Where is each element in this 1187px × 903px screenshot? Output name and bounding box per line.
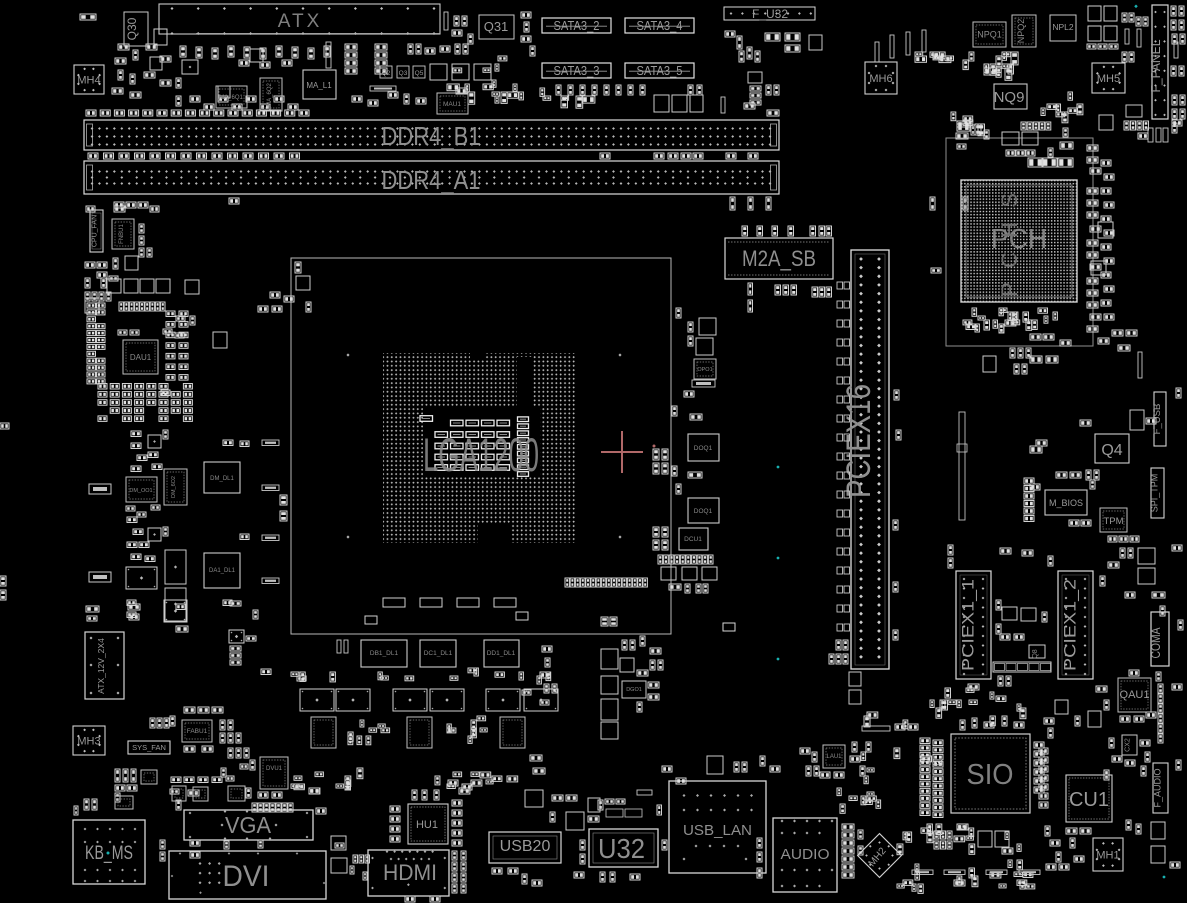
- svg-text:DAU1: DAU1: [130, 353, 152, 362]
- svg-text:NPL2: NPL2: [1052, 22, 1074, 32]
- svg-text:DM_6O2: DM_6O2: [171, 476, 177, 498]
- svg-text:SPI_TPM: SPI_TPM: [1150, 474, 1160, 513]
- svg-text:Q3: Q3: [399, 70, 408, 77]
- svg-text:MAU1: MAU1: [443, 101, 461, 108]
- svg-text:NQ9: NQ9: [994, 89, 1025, 106]
- svg-text:Q8: Q8: [1032, 649, 1039, 658]
- svg-text:USB_LAN: USB_LAN: [683, 822, 752, 839]
- svg-text:ATX_12V_2X4: ATX_12V_2X4: [96, 638, 106, 694]
- svg-text:SYS_FAN: SYS_FAN: [132, 743, 166, 752]
- svg-text:DM_DL1: DM_DL1: [210, 476, 234, 482]
- svg-text:PCIEX1_1: PCIEX1_1: [959, 579, 978, 671]
- svg-text:ATX: ATX: [278, 11, 323, 32]
- svg-text:DGO1: DGO1: [626, 687, 642, 693]
- svg-text:Q4: Q4: [1101, 442, 1122, 459]
- svg-text:MH1: MH1: [1096, 849, 1119, 861]
- svg-text:NPQ1: NPQ1: [977, 30, 1002, 40]
- svg-text:OPO1: OPO1: [697, 367, 712, 373]
- svg-text:FABU1: FABU1: [187, 728, 208, 735]
- svg-text:DC1_DL1: DC1_DL1: [424, 650, 453, 657]
- svg-text:DOQ1: DOQ1: [694, 445, 713, 452]
- svg-text:SATA3_5: SATA3_5: [637, 64, 683, 78]
- svg-text:DVI: DVI: [223, 860, 270, 893]
- svg-text:SATA3_2: SATA3_2: [554, 19, 600, 33]
- svg-text:DD1_DL1: DD1_DL1: [487, 650, 516, 657]
- svg-text:MH6: MH6: [869, 73, 892, 85]
- svg-text:U32: U32: [598, 833, 645, 864]
- svg-text:DCU1: DCU1: [684, 536, 702, 543]
- svg-text:QAU1: QAU1: [1120, 689, 1150, 701]
- svg-text:M_BIOS: M_BIOS: [1049, 498, 1083, 508]
- svg-text:DDR4_A1: DDR4_A1: [382, 165, 481, 195]
- svg-text:DDR4_B1: DDR4_B1: [382, 121, 481, 151]
- svg-text:COMA: COMA: [1148, 627, 1163, 658]
- svg-text:FNBU1: FNBU1: [119, 224, 125, 244]
- svg-text:SATA3_3: SATA3_3: [554, 64, 600, 78]
- svg-text:LGA1200: LGA1200: [423, 428, 539, 481]
- svg-text:DM_OO1: DM_OO1: [129, 488, 152, 494]
- svg-text:DOQ1: DOQ1: [694, 508, 713, 515]
- svg-text:MA_6Q1: MA_6Q1: [219, 95, 243, 101]
- svg-text:F_USB: F_USB: [1152, 404, 1163, 435]
- svg-text:SATA3_4: SATA3_4: [637, 19, 683, 33]
- svg-text:LAU1: LAU1: [826, 754, 842, 760]
- svg-text:F_U32: F_U32: [752, 7, 788, 21]
- svg-text:AUDIO: AUDIO: [781, 846, 830, 863]
- svg-text:MA_L1: MA_L1: [306, 81, 332, 90]
- svg-text:HU1: HU1: [416, 819, 438, 831]
- svg-text:Q31: Q31: [484, 19, 509, 34]
- svg-text:F_AUDIO: F_AUDIO: [1153, 768, 1163, 807]
- svg-text:M2A_SB: M2A_SB: [742, 246, 816, 271]
- svg-text:MA_6Q2: MA_6Q2: [267, 83, 273, 107]
- svg-text:CU1: CU1: [1069, 789, 1109, 811]
- svg-text:CX2: CX2: [1125, 738, 1132, 752]
- svg-text:USB20: USB20: [500, 838, 551, 855]
- svg-text:DA1_DL1: DA1_DL1: [209, 568, 236, 574]
- svg-text:CPU_FAN: CPU_FAN: [92, 215, 99, 247]
- svg-text:VGA: VGA: [225, 812, 272, 838]
- svg-text:SIO: SIO: [967, 759, 1014, 791]
- svg-text:MH4: MH4: [77, 74, 100, 86]
- svg-text:NPQ2: NPQ2: [1016, 19, 1026, 44]
- svg-text:Q2: Q2: [382, 70, 391, 77]
- svg-text:DVU1: DVU1: [266, 766, 283, 772]
- svg-text:HDMI: HDMI: [383, 860, 437, 885]
- svg-text:TPM: TPM: [1103, 516, 1123, 527]
- svg-text:DB1_DL1: DB1_DL1: [370, 650, 399, 657]
- svg-text:MH5: MH5: [1097, 73, 1120, 85]
- svg-text:Q5: Q5: [415, 70, 424, 77]
- svg-text:Q30: Q30: [125, 17, 139, 40]
- svg-text:PCIEX1_2: PCIEX1_2: [1061, 579, 1080, 671]
- svg-text:MH3: MH3: [77, 735, 100, 747]
- svg-text:F_PANEL: F_PANEL: [1149, 39, 1163, 92]
